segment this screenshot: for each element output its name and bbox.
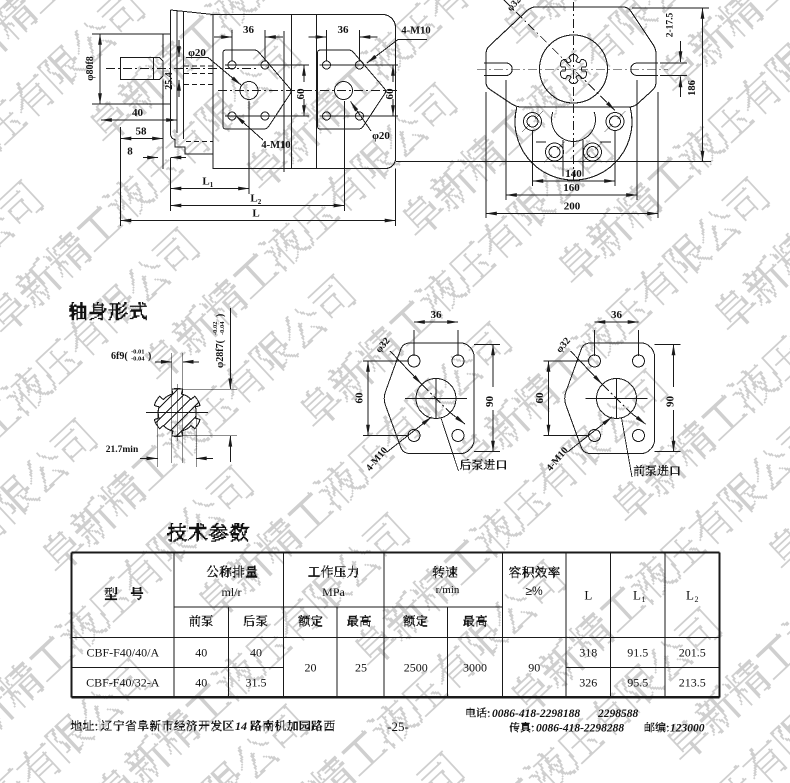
svg-text:-25-: -25- bbox=[387, 719, 409, 734]
svg-text:-0.01: -0.01 bbox=[131, 349, 145, 356]
svg-text:90: 90 bbox=[528, 660, 540, 674]
svg-text:25.4: 25.4 bbox=[164, 72, 175, 90]
svg-text:60: 60 bbox=[295, 88, 307, 100]
svg-text:21.7min: 21.7min bbox=[106, 445, 139, 455]
svg-text:90: 90 bbox=[484, 396, 496, 408]
svg-text:4-M10: 4-M10 bbox=[364, 445, 390, 473]
svg-text:14: 14 bbox=[235, 719, 247, 733]
svg-text:58: 58 bbox=[136, 126, 148, 138]
svg-text:1: 1 bbox=[210, 181, 214, 189]
svg-text:1: 1 bbox=[642, 595, 646, 604]
svg-text:36: 36 bbox=[243, 24, 255, 36]
svg-text:): ) bbox=[148, 351, 151, 362]
svg-text:123000: 123000 bbox=[670, 723, 705, 735]
svg-text:25: 25 bbox=[355, 660, 367, 674]
svg-text:φ80f8: φ80f8 bbox=[85, 56, 96, 81]
svg-text:2-17.5: 2-17.5 bbox=[666, 12, 676, 37]
svg-text:2500: 2500 bbox=[404, 660, 428, 674]
svg-text:≥%: ≥% bbox=[525, 584, 543, 598]
svg-text:40: 40 bbox=[250, 645, 262, 659]
svg-text:186: 186 bbox=[687, 80, 698, 96]
svg-text:31.5: 31.5 bbox=[246, 675, 267, 689]
svg-text:6f9(: 6f9( bbox=[111, 351, 128, 362]
svg-text:-0.02: -0.02 bbox=[212, 321, 219, 335]
svg-text:140: 140 bbox=[565, 168, 582, 180]
svg-text:4-M10: 4-M10 bbox=[261, 140, 290, 151]
svg-text:60: 60 bbox=[384, 88, 396, 100]
svg-text:L: L bbox=[633, 588, 641, 603]
svg-text:φ20: φ20 bbox=[372, 130, 390, 142]
svg-text:60: 60 bbox=[354, 392, 366, 404]
svg-text:): ) bbox=[215, 314, 226, 317]
svg-text:36: 36 bbox=[431, 309, 443, 321]
svg-text:CBF-F40/40/A: CBF-F40/40/A bbox=[86, 645, 159, 659]
svg-text:318: 318 bbox=[579, 645, 597, 659]
svg-text:2: 2 bbox=[695, 595, 699, 604]
svg-text:r/min: r/min bbox=[436, 584, 460, 596]
svg-text:95.5: 95.5 bbox=[627, 675, 648, 689]
svg-text:L: L bbox=[250, 193, 257, 205]
svg-text:0086-418-2298288: 0086-418-2298288 bbox=[536, 723, 624, 735]
svg-text:2298588: 2298588 bbox=[597, 708, 639, 720]
svg-text:36: 36 bbox=[338, 24, 350, 36]
svg-text:36: 36 bbox=[611, 309, 623, 321]
svg-text:40: 40 bbox=[195, 675, 207, 689]
svg-text:200: 200 bbox=[564, 201, 581, 213]
svg-text:90: 90 bbox=[665, 396, 677, 408]
svg-text:-0.04: -0.04 bbox=[131, 356, 145, 363]
svg-text:L: L bbox=[252, 208, 259, 220]
svg-text:2: 2 bbox=[258, 198, 262, 206]
svg-text:3000: 3000 bbox=[463, 660, 487, 674]
svg-text:60: 60 bbox=[534, 392, 546, 404]
svg-text:4-M10: 4-M10 bbox=[401, 26, 430, 37]
svg-text:40: 40 bbox=[195, 645, 207, 659]
svg-text:91.5: 91.5 bbox=[627, 645, 648, 659]
svg-text:326: 326 bbox=[579, 675, 597, 689]
svg-text:ml/r: ml/r bbox=[222, 585, 242, 599]
svg-text:-0.04: -0.04 bbox=[219, 321, 226, 335]
svg-text:MPa: MPa bbox=[322, 585, 345, 599]
svg-text:40: 40 bbox=[132, 107, 144, 119]
svg-text:L: L bbox=[584, 588, 592, 603]
svg-text:L: L bbox=[202, 176, 209, 188]
svg-text:0086-418-2298188: 0086-418-2298188 bbox=[492, 708, 580, 720]
svg-text:8: 8 bbox=[127, 146, 133, 158]
svg-text:φ28f7(: φ28f7( bbox=[215, 339, 226, 368]
svg-text:CBF-F40/32-A: CBF-F40/32-A bbox=[86, 675, 160, 689]
svg-text:4-M10: 4-M10 bbox=[544, 445, 570, 473]
svg-text:201.5: 201.5 bbox=[679, 645, 706, 659]
svg-text:L: L bbox=[686, 588, 694, 603]
svg-text:160: 160 bbox=[563, 182, 580, 194]
svg-text:20: 20 bbox=[305, 660, 317, 674]
svg-text:213.5: 213.5 bbox=[679, 675, 706, 689]
